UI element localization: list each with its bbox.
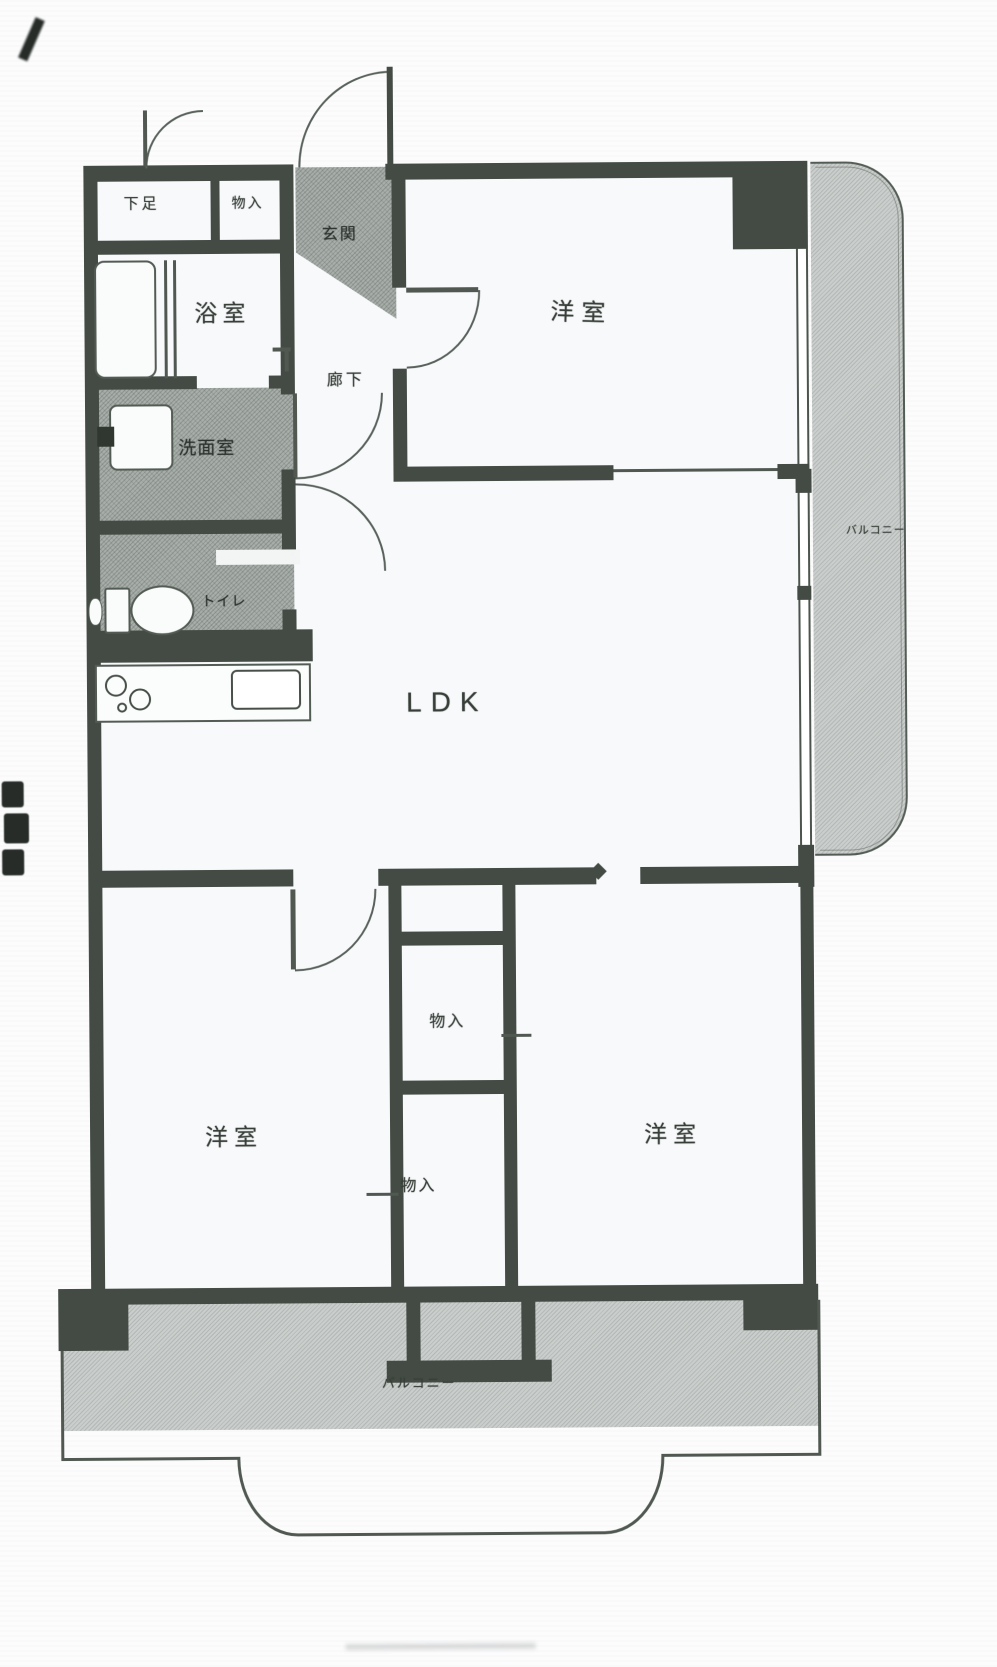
wall-bottom-left-block bbox=[58, 1289, 128, 1351]
balcony-bottom-rail-step bbox=[237, 1454, 665, 1537]
label-entry-storage: 物入 bbox=[232, 196, 264, 210]
toilet-paper-holder bbox=[88, 598, 102, 626]
wall-washroom-toilet bbox=[86, 519, 294, 534]
label-balcony-right: バルコニー bbox=[846, 525, 906, 536]
meter-door-arc bbox=[145, 110, 203, 168]
label-bedroom-top-right: 洋室 bbox=[550, 301, 613, 327]
front-door-leaf bbox=[387, 67, 394, 167]
label-balcony-bottom: バルコニー bbox=[382, 1376, 457, 1390]
washbasin bbox=[109, 404, 173, 470]
wall-ldk-lower bbox=[88, 869, 293, 887]
scan-artifact bbox=[346, 1643, 536, 1650]
wall-bedroom-ldk bbox=[777, 464, 809, 479]
wall-hall-right bbox=[391, 164, 406, 288]
balcony-bottom-right-rail bbox=[817, 1300, 821, 1456]
label-shoe-closet: 下足 bbox=[124, 196, 160, 211]
balcony-bottom-rail-right-seg bbox=[662, 1453, 821, 1457]
window-living bbox=[798, 493, 812, 845]
label-entrance: 玄関 bbox=[322, 227, 358, 243]
scan-artifact bbox=[4, 813, 29, 843]
front-door-arc bbox=[298, 71, 393, 168]
wall-ldk-lower bbox=[378, 867, 596, 886]
storage-upper-tick bbox=[501, 1034, 531, 1037]
wall-under-closets bbox=[84, 239, 294, 254]
wall-closet-top bbox=[402, 931, 503, 946]
label-toilet: トイレ bbox=[201, 594, 246, 608]
window-catch bbox=[797, 586, 811, 600]
wall-right-lower bbox=[800, 887, 816, 1294]
scan-artifact bbox=[2, 781, 24, 807]
kitchen-sink bbox=[231, 669, 301, 709]
label-hallway: 廊下 bbox=[327, 373, 365, 389]
bedroom-top-door-leaf bbox=[406, 287, 478, 293]
label-bedroom-bottom-left: 洋室 bbox=[205, 1126, 263, 1149]
washroom-door-leaf bbox=[293, 393, 298, 477]
wall-bedroom-ldk bbox=[393, 465, 613, 482]
wall-ldk-lower bbox=[640, 866, 812, 884]
wall-hall-left bbox=[282, 609, 296, 661]
wall-hall-left bbox=[281, 469, 296, 549]
label-storage-lower: 物入 bbox=[400, 1178, 436, 1194]
label-bedroom-bottom-right: 洋室 bbox=[644, 1123, 702, 1146]
wall-closet-divider bbox=[210, 168, 220, 244]
balcony-bottom-rail-left-seg bbox=[61, 1457, 239, 1461]
stove-burner-icon bbox=[117, 703, 127, 713]
window-bedroom-top bbox=[796, 249, 810, 469]
bath-tap-icon bbox=[285, 347, 289, 371]
bathtub bbox=[94, 260, 157, 378]
washbasin-tap-icon bbox=[97, 427, 114, 447]
label-living-ldk: LDK bbox=[406, 688, 488, 717]
storage-lower-tick bbox=[367, 1193, 399, 1196]
wall-hall-right bbox=[393, 369, 408, 481]
meter-door-leaf bbox=[143, 110, 147, 166]
toilet-shelf bbox=[216, 549, 300, 565]
scanned-floorplan-page: 下足 物入 玄関 浴室 廊下 洗面室 トイレ 洋室 LDK バルコニー 物入 物… bbox=[0, 0, 997, 1667]
toilet-tank bbox=[104, 588, 130, 634]
wall-closet-divider bbox=[390, 1080, 517, 1095]
floorplan-drawing: 下足 物入 玄関 浴室 廊下 洗面室 トイレ 洋室 LDK バルコニー 物入 物… bbox=[0, 0, 997, 1667]
scan-artifact bbox=[18, 17, 45, 61]
toilet-bowl bbox=[130, 585, 194, 635]
stove-burner-icon bbox=[105, 675, 127, 697]
wall-top-right-corner-block bbox=[732, 161, 808, 250]
label-washroom: 洗面室 bbox=[178, 439, 235, 457]
stove-burner-icon bbox=[129, 688, 151, 710]
scan-artifact bbox=[2, 849, 24, 875]
wall-toilet-kitchen bbox=[87, 629, 313, 663]
balcony-right-inner-rail bbox=[815, 166, 903, 851]
label-bath: 浴室 bbox=[194, 302, 250, 325]
label-storage-upper: 物入 bbox=[429, 1014, 465, 1030]
bedroom-left-door-leaf bbox=[290, 889, 296, 969]
